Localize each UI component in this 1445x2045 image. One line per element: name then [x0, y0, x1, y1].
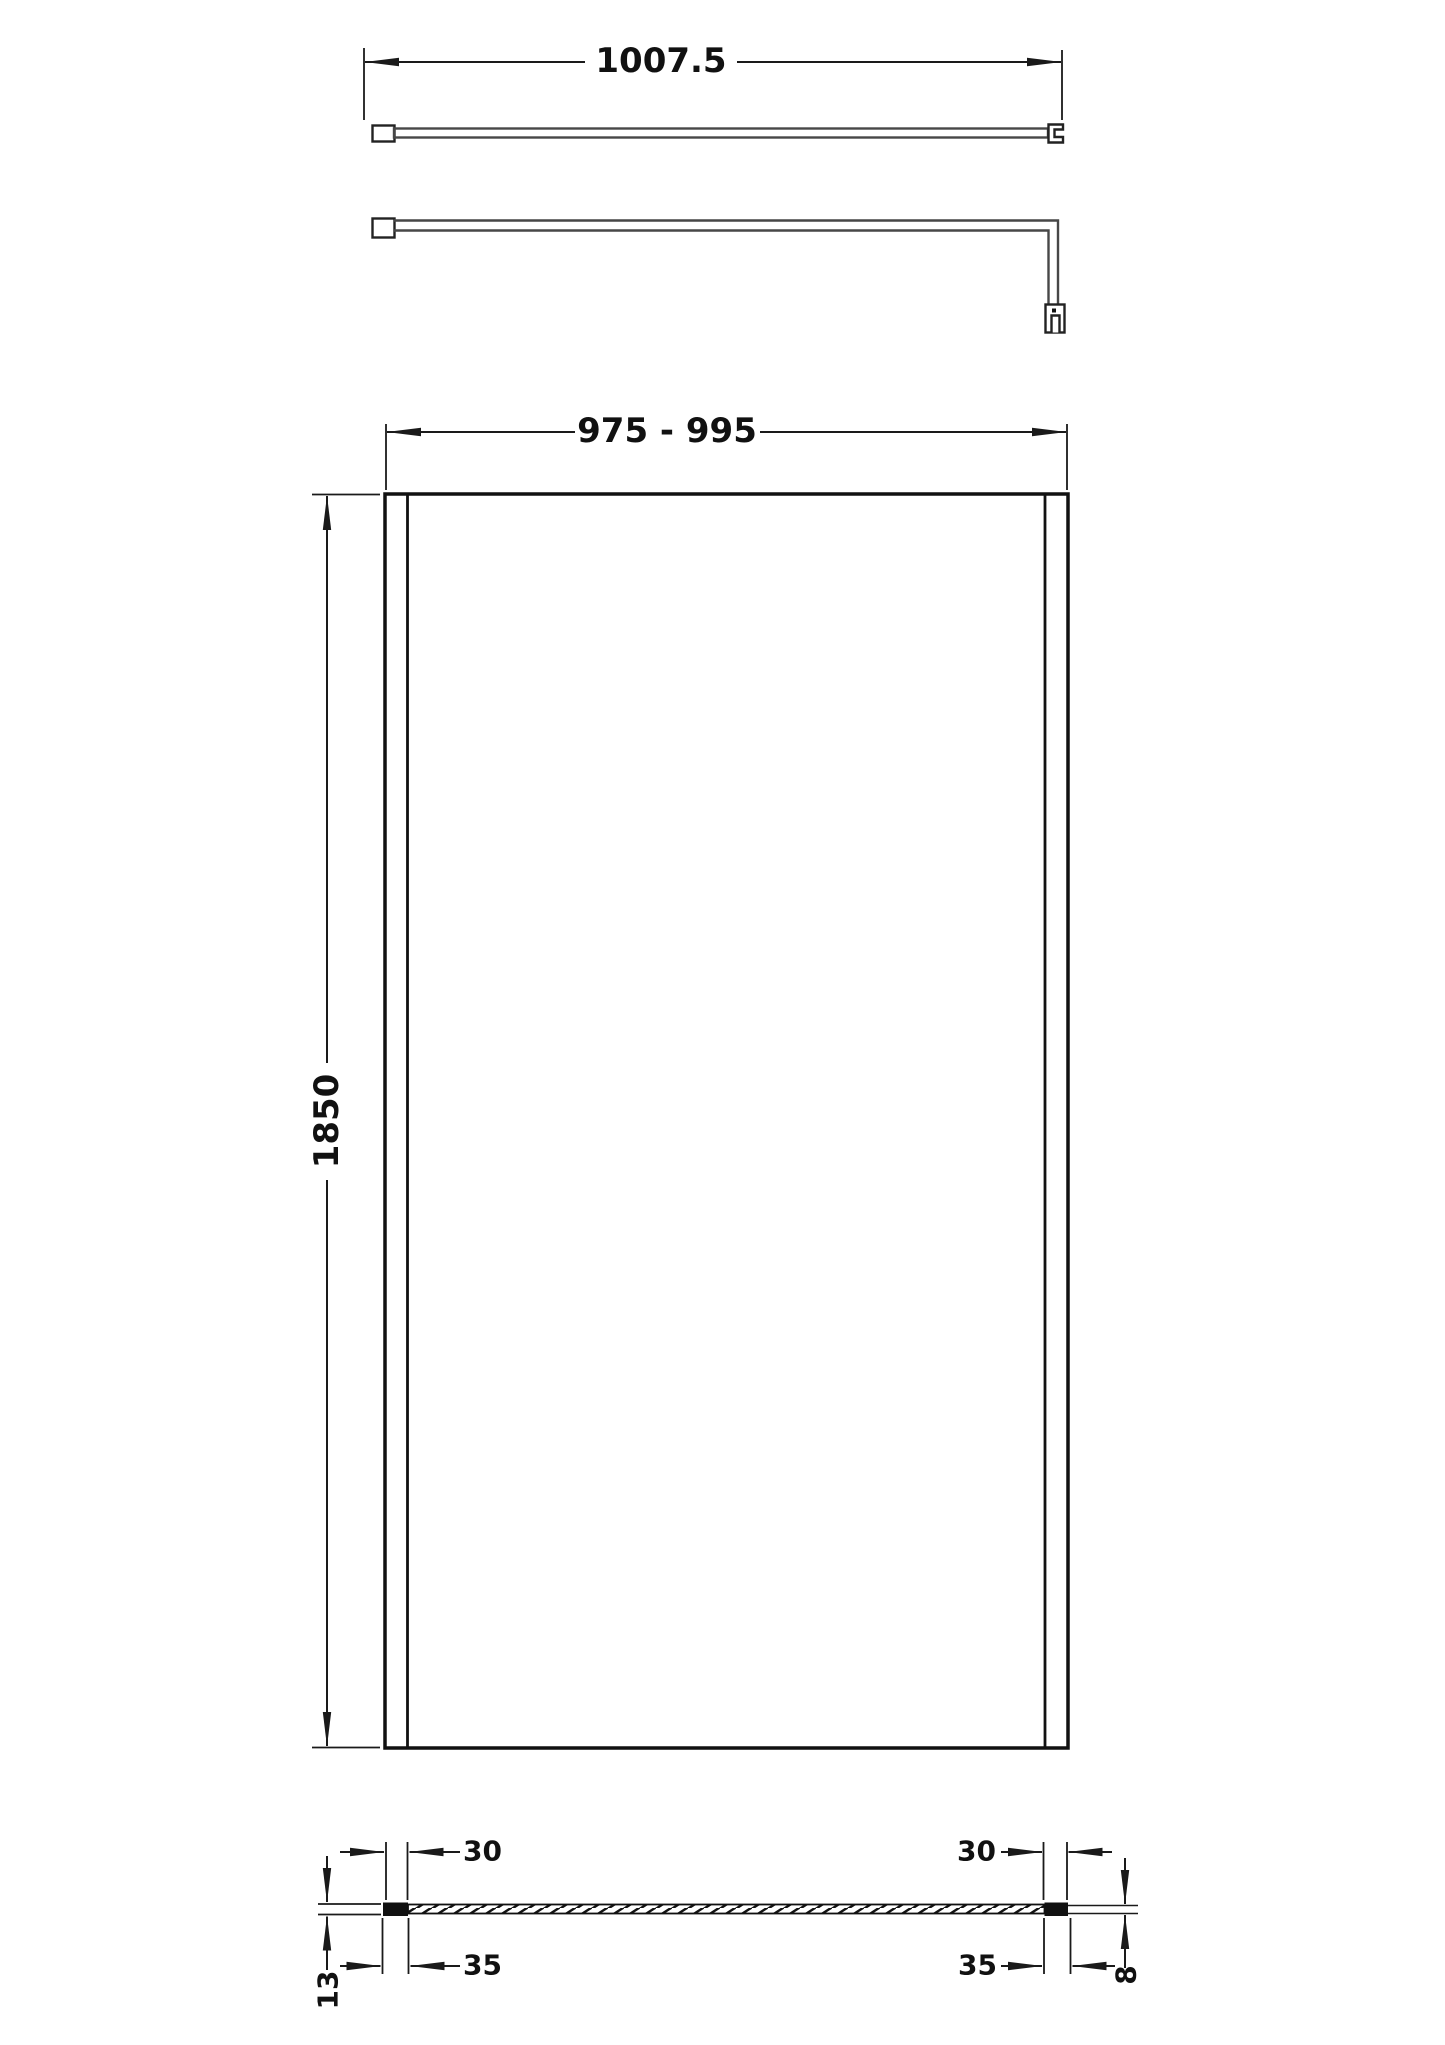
glass-thickness-dimension: 8: [1110, 1965, 1143, 1984]
plan-view: 30 30 35 35 13 8: [312, 1835, 1143, 2010]
screen-width-dimension: 975 - 995: [577, 411, 757, 451]
support-bar-inner-edge: [394, 231, 1049, 305]
bar-top-view: 1007.5: [364, 41, 1063, 143]
front-view: 975 - 995 1850: [307, 411, 1068, 1748]
right-wall-profile-section: [1045, 1903, 1069, 1917]
technical-drawing-canvas: 1007.5 975 - 995 1850: [0, 0, 1445, 2045]
support-bar-outer-edge: [394, 221, 1058, 305]
bar-length-dimension: 1007.5: [595, 41, 726, 81]
right-profile-width-dimension: 30: [957, 1835, 996, 1868]
left-overall-width-dimension: 35: [463, 1949, 502, 1982]
support-bar-top-view: [394, 129, 1048, 138]
glass-clamp-notch: [1052, 316, 1060, 333]
clamp-screw: [1052, 309, 1056, 313]
glass-panel: [385, 494, 1068, 1748]
screen-height-dimension: 1850: [307, 1074, 347, 1169]
shower-screen-drawing: 1007.5 975 - 995 1850: [0, 0, 1445, 2045]
right-overall-width-dimension: 35: [958, 1949, 997, 1982]
left-wall-profile-section: [383, 1903, 408, 1917]
glass-clamp-top-view: [1049, 125, 1064, 143]
wall-bracket-top-view: [373, 126, 395, 142]
glass-section-hatched: [408, 1905, 1045, 1914]
left-profile-width-dimension: 30: [463, 1835, 502, 1868]
wall-bracket-side-view: [373, 219, 395, 238]
profile-depth-dimension: 13: [312, 1971, 345, 2010]
bar-side-view: [373, 219, 1065, 333]
